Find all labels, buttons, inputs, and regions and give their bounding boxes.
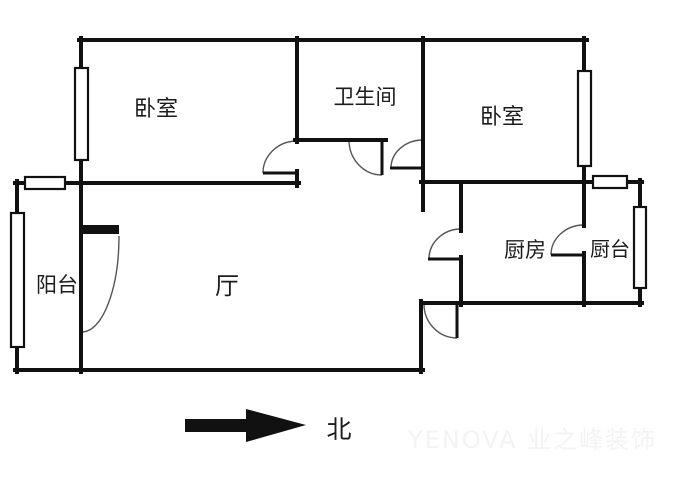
hall-label: 厅 [215,272,239,300]
north-arrow-shaft [185,419,247,432]
kitchen-door-arc [429,229,461,259]
floor-plan-canvas: YENOVA 业之峰装饰 [0,0,700,480]
bedroom-left-window [75,68,88,160]
room-labels: 卧室 卫生间 卧室 厨房 厨台 阳台 厅 [36,85,630,300]
bathroom-label: 卫生间 [334,85,397,109]
balcony-door-arc [83,236,119,332]
balcony-label: 阳台 [36,273,78,297]
kitchen-label: 厨房 [504,238,546,262]
entry-door-arc [424,304,457,338]
floor-plan: YENOVA 业之峰装饰 [0,0,700,480]
watermark-text: YENOVA 业之峰装饰 [407,426,657,454]
bedroom-right-window [578,71,591,166]
north-arrow-head [246,409,306,442]
balcony-north-window [25,177,65,189]
walls [15,38,642,372]
windows [11,68,646,347]
bedroom-right-label: 卧室 [480,105,524,130]
balcony-west-window [11,213,24,347]
kitchen-counter-east-window [634,207,646,288]
compass: 北 [185,409,352,444]
bedroom-left-label: 卧室 [134,97,178,122]
kitchen-counter-north-window [593,176,627,188]
kitchen-counter-label: 厨台 [590,237,630,261]
hall-nook-door-arc [391,140,423,168]
kitchen-counter-door-arc [551,225,584,255]
balcony-door-panel [82,225,119,234]
bedroom-left-door-arc [263,141,297,173]
north-label: 北 [326,415,351,444]
bathroom-door-arc [349,140,382,175]
